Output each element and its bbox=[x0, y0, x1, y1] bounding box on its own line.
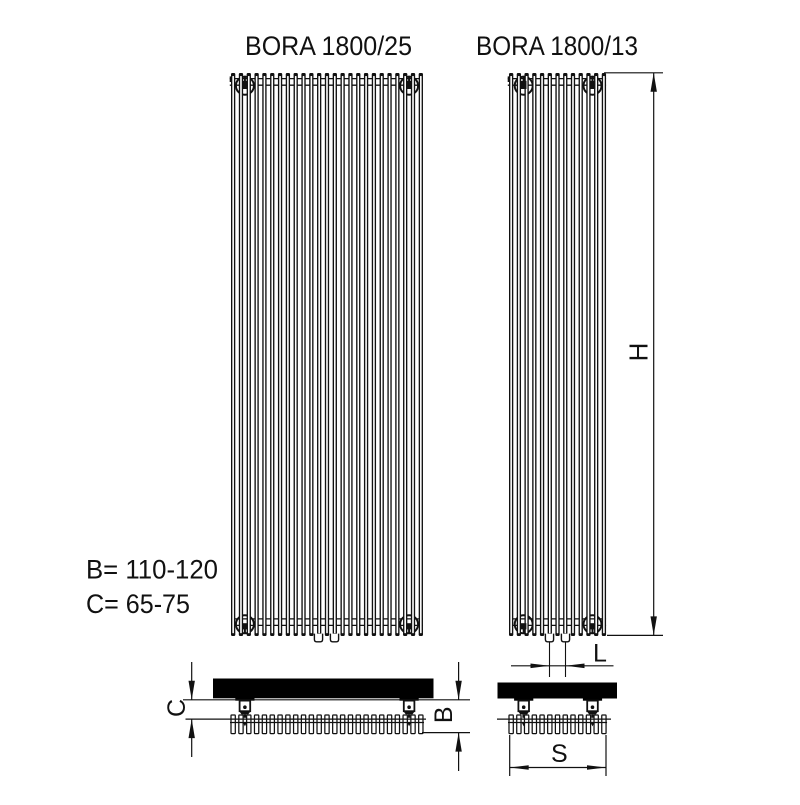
svg-text:C= 65-75: C= 65-75 bbox=[86, 589, 190, 619]
svg-text:BORA 1800/13: BORA 1800/13 bbox=[476, 31, 638, 61]
svg-text:H: H bbox=[623, 343, 653, 362]
svg-text:BORA 1800/25: BORA 1800/25 bbox=[245, 31, 412, 61]
svg-text:L: L bbox=[593, 640, 607, 668]
svg-text:C: C bbox=[163, 699, 191, 717]
svg-text:B= 110-120: B= 110-120 bbox=[86, 555, 218, 585]
svg-text:B: B bbox=[430, 706, 458, 723]
svg-text:S: S bbox=[551, 740, 568, 768]
